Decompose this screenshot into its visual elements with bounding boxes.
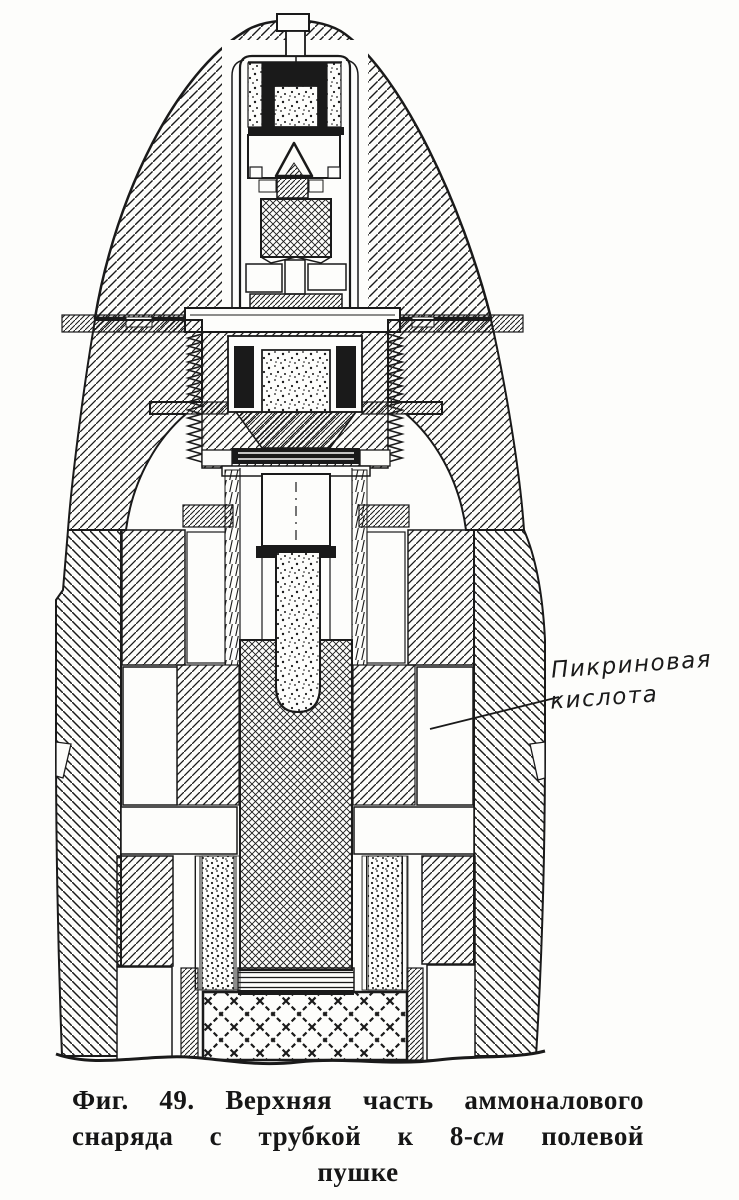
caption-line-1: Фиг. 49. Верхняя часть аммоналового <box>72 1082 644 1118</box>
shell-wall-upper-right <box>388 320 524 530</box>
gasket-seal <box>232 448 360 464</box>
figure-caption: Фиг. 49. Верхняя часть аммоналового снар… <box>72 1082 644 1190</box>
shell-wall-lower-left <box>56 530 121 1056</box>
shell-wall-upper-left <box>68 320 202 530</box>
annotation-picric-acid: Пикриновая кислота <box>550 644 715 717</box>
ammonal-charge <box>203 992 407 1060</box>
figure-number: Фиг. 49. <box>72 1085 195 1115</box>
shell-wall-lower-right <box>466 530 545 1056</box>
detonator-tube <box>276 552 320 712</box>
shell-cross-section-diagram <box>0 0 739 1200</box>
scanned-page: Пикриновая кислота Фиг. 49. Верхняя част… <box>0 0 739 1200</box>
caption-line-2: снаряда с трубкой к 8-см полевой <box>72 1118 644 1154</box>
fuze-stem-assembly <box>246 260 346 310</box>
primer-magazine <box>248 63 344 135</box>
caption-line-3: пушке <box>72 1154 644 1190</box>
powder-pellet-block <box>261 199 331 263</box>
